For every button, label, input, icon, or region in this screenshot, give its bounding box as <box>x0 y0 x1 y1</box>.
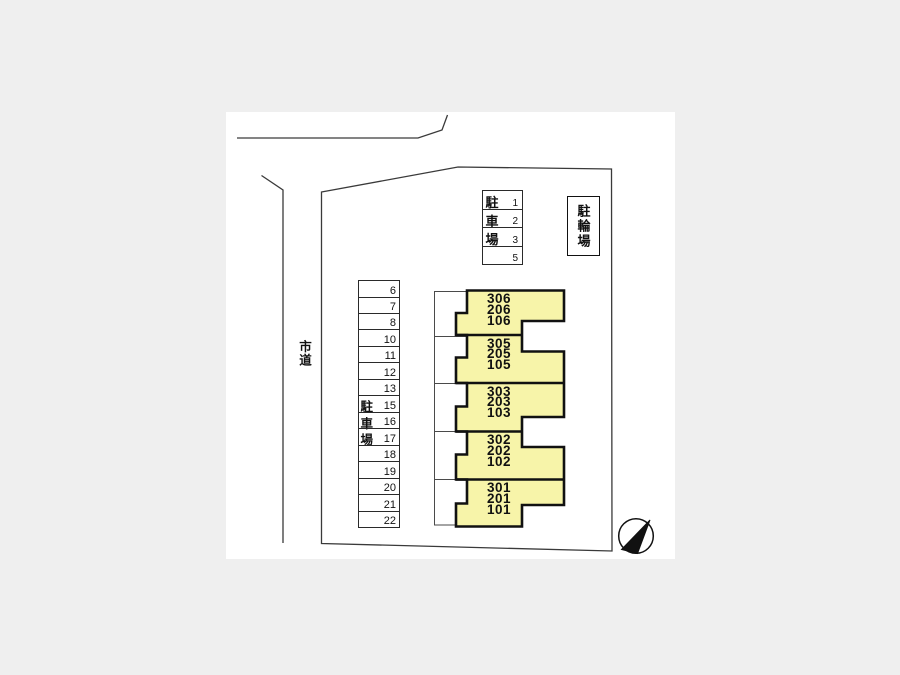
stall-number: 5 <box>512 253 518 264</box>
parking-stall-row: 駐 15 <box>358 395 401 413</box>
stall-number: 13 <box>384 383 396 395</box>
parking-stall-row: 20 <box>358 478 401 496</box>
stall-number: 6 <box>390 285 396 297</box>
unit-number: 106 <box>487 316 511 327</box>
stall-number: 12 <box>384 367 396 379</box>
site-plan-page: 駐 1 車 2 場 3 5 6 7 8 10 <box>0 0 900 675</box>
stall-number: 18 <box>384 449 396 461</box>
unit-labels: 301 201 101 <box>487 483 511 515</box>
parking-stall-row: 5 <box>482 246 524 266</box>
parking-stall-row: 場 3 <box>482 227 524 247</box>
stall-number: 22 <box>384 515 396 527</box>
stall-number: 17 <box>384 433 396 445</box>
parking-stall-row: 11 <box>358 346 401 364</box>
stall-number: 21 <box>384 499 396 511</box>
parking-stall-row: 13 <box>358 379 401 397</box>
unit-number: 105 <box>487 360 511 371</box>
road-edge-left <box>262 176 284 544</box>
stall-number: 10 <box>384 334 396 346</box>
parking-stall-row: 車 16 <box>358 412 401 430</box>
stall-number: 19 <box>384 466 396 478</box>
stall-number: 1 <box>512 198 518 209</box>
parking-stall-row: 駐 1 <box>482 190 524 210</box>
unit-number: 102 <box>487 457 511 468</box>
city-road-label: 市道 <box>295 340 314 367</box>
unit-labels: 306 206 106 <box>487 294 511 326</box>
unit-labels: 305 205 105 <box>487 339 511 371</box>
parking-stall-row: 22 <box>358 511 401 529</box>
parking-stall-row: 18 <box>358 445 401 463</box>
parking-stall-row: 8 <box>358 313 401 331</box>
stall-number: 11 <box>385 350 396 362</box>
parking-stall-row: 21 <box>358 494 401 512</box>
stall-number: 2 <box>512 216 518 227</box>
stall-number: 20 <box>384 482 396 494</box>
stall-number: 8 <box>390 317 396 329</box>
stall-number: 7 <box>390 301 396 313</box>
stall-number: 15 <box>384 400 396 412</box>
site-plan-drawing <box>0 0 900 675</box>
stall-number: 3 <box>512 235 518 246</box>
unit-labels: 303 203 103 <box>487 387 511 419</box>
stall-number: 16 <box>384 416 396 428</box>
unit-number: 103 <box>487 408 511 419</box>
road-edge-top <box>237 115 448 138</box>
unit-labels: 302 202 102 <box>487 435 511 467</box>
parking-stall-row: 車 2 <box>482 209 524 229</box>
parking-stall-row: 10 <box>358 329 401 347</box>
parking-stall-row: 場 17 <box>358 428 401 446</box>
parking-stall-row: 6 <box>358 280 401 298</box>
parking-stall-row: 12 <box>358 362 401 380</box>
unit-number: 101 <box>487 505 511 516</box>
bicycle-shed-box: 駐輪場 <box>567 196 600 256</box>
parking-stall-row: 7 <box>358 297 401 315</box>
parking-stall-row: 19 <box>358 461 401 479</box>
compass-north-icon <box>619 519 654 554</box>
